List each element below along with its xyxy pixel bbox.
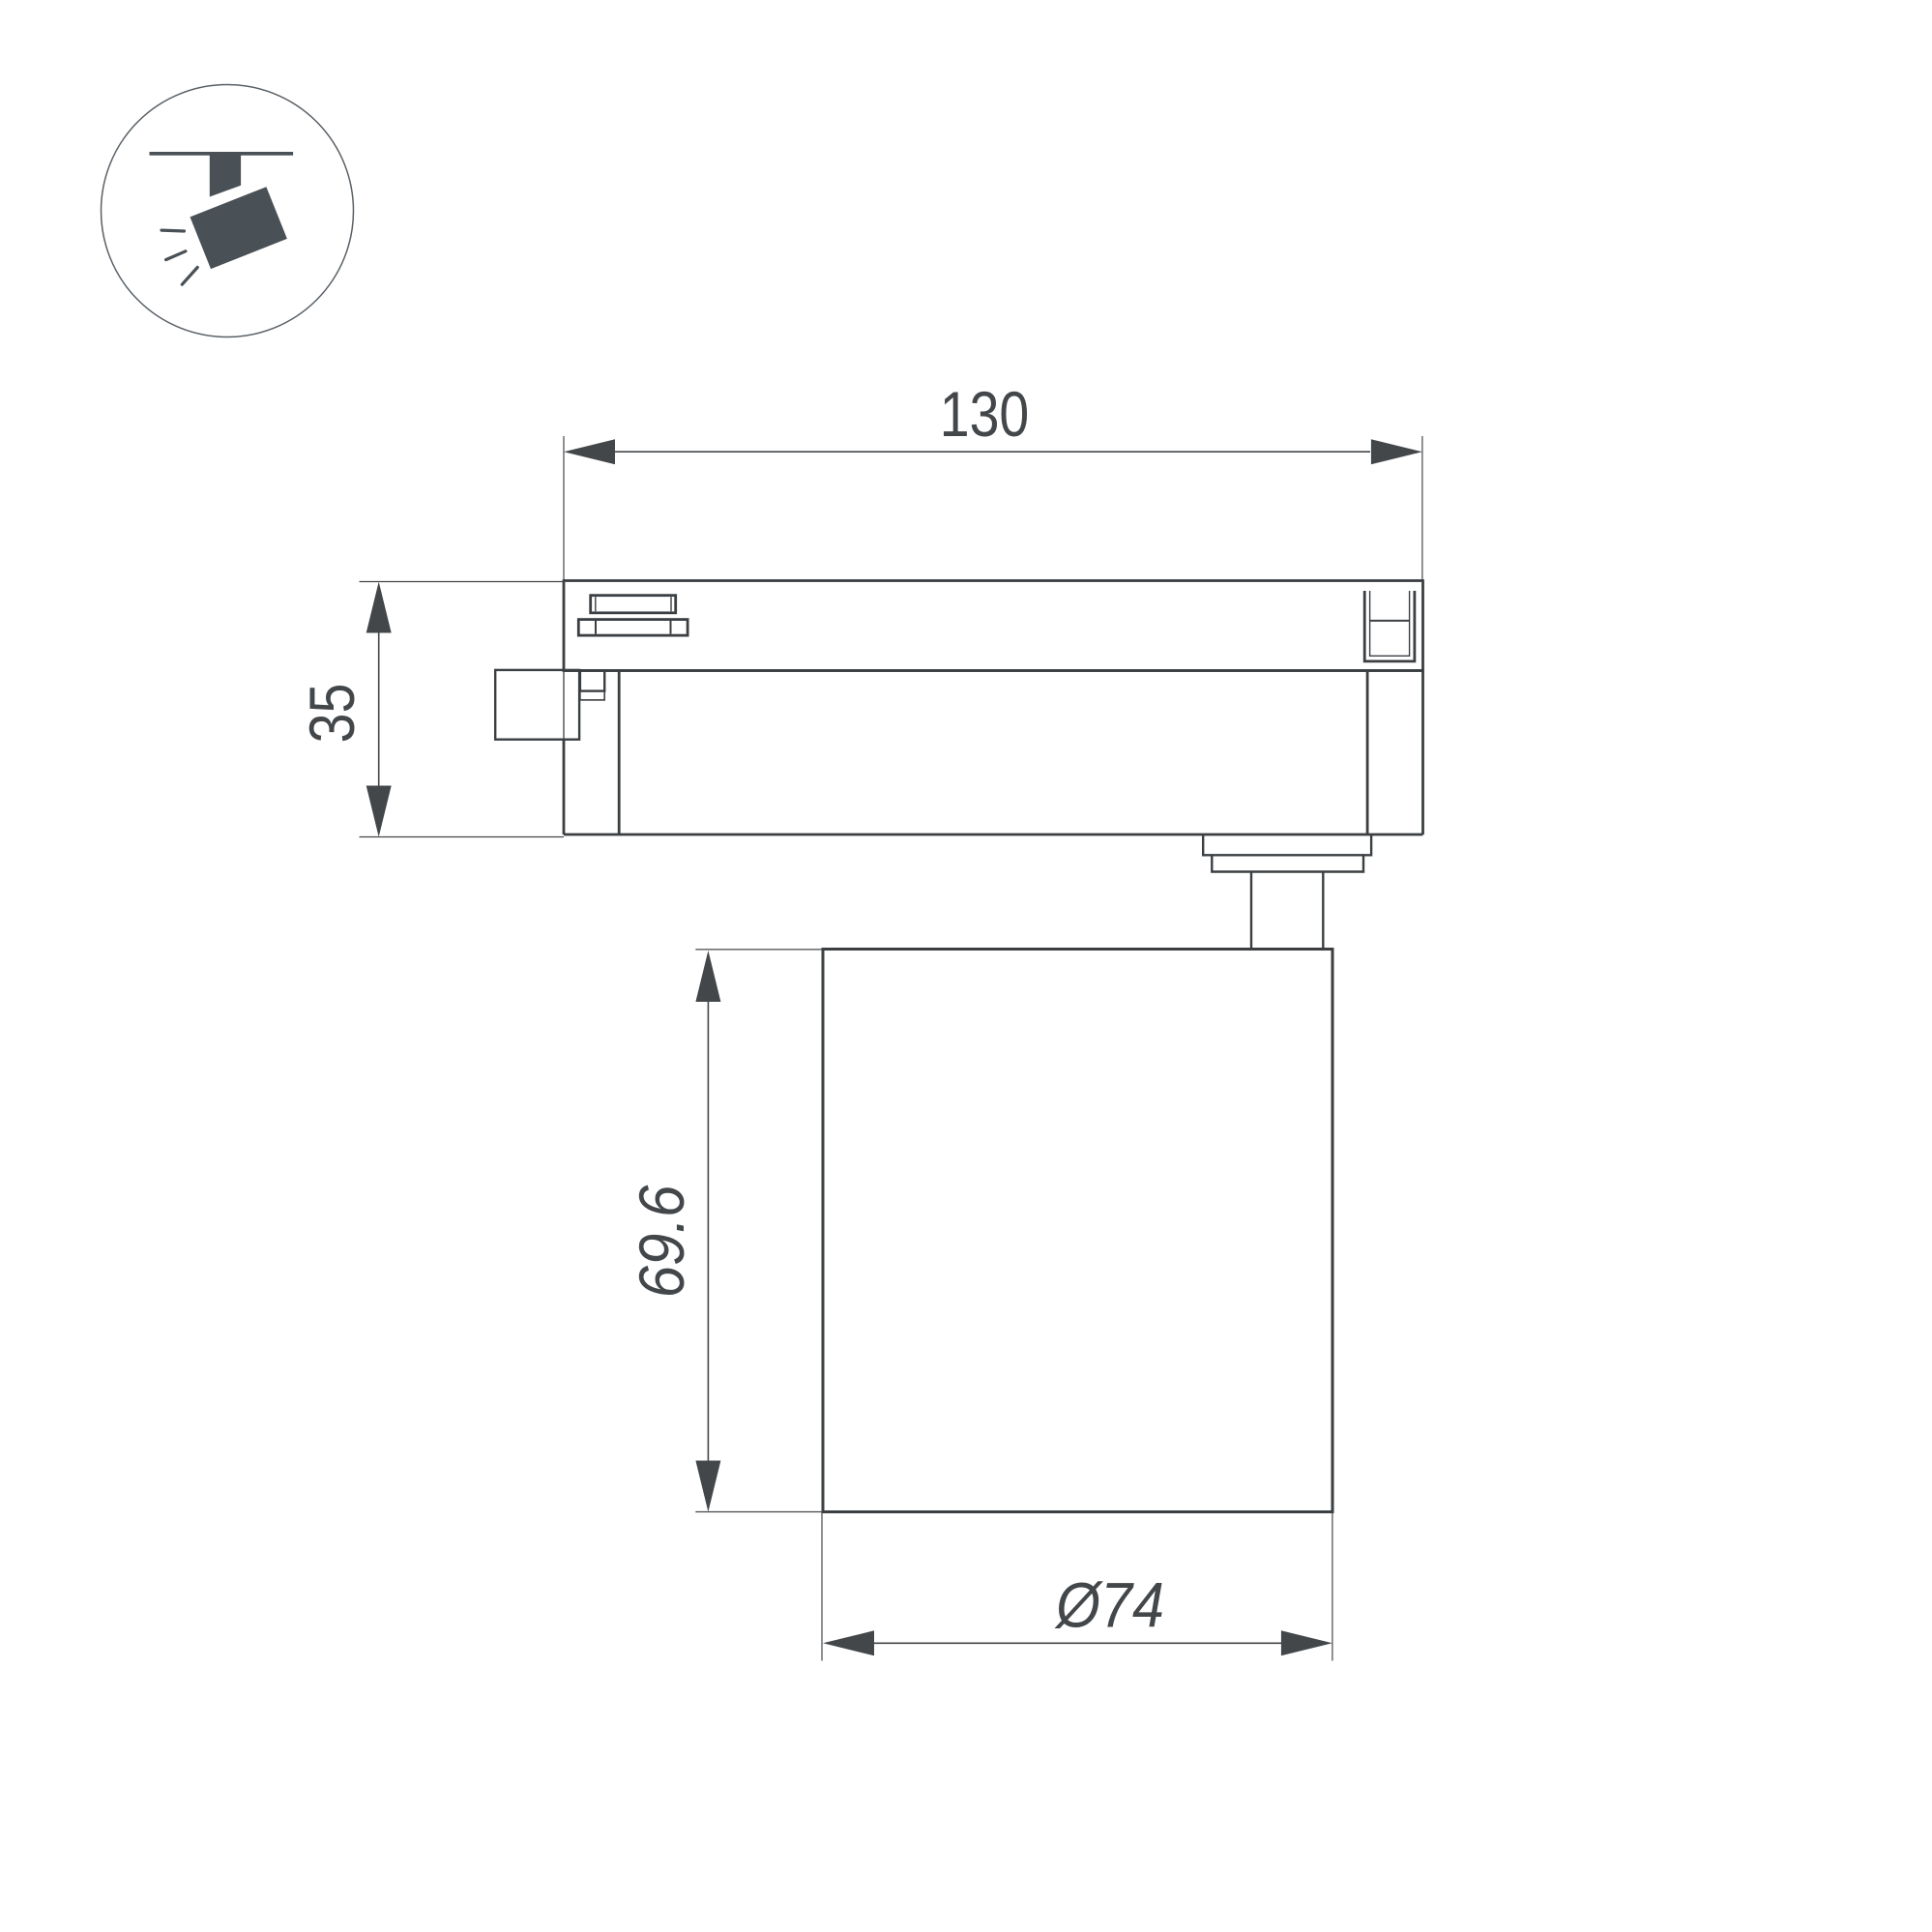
svg-text:69.6: 69.6	[627, 1185, 697, 1299]
svg-text:130: 130	[940, 378, 1029, 450]
svg-text:Ø74: Ø74	[1054, 1569, 1164, 1641]
svg-text:35: 35	[296, 684, 367, 744]
